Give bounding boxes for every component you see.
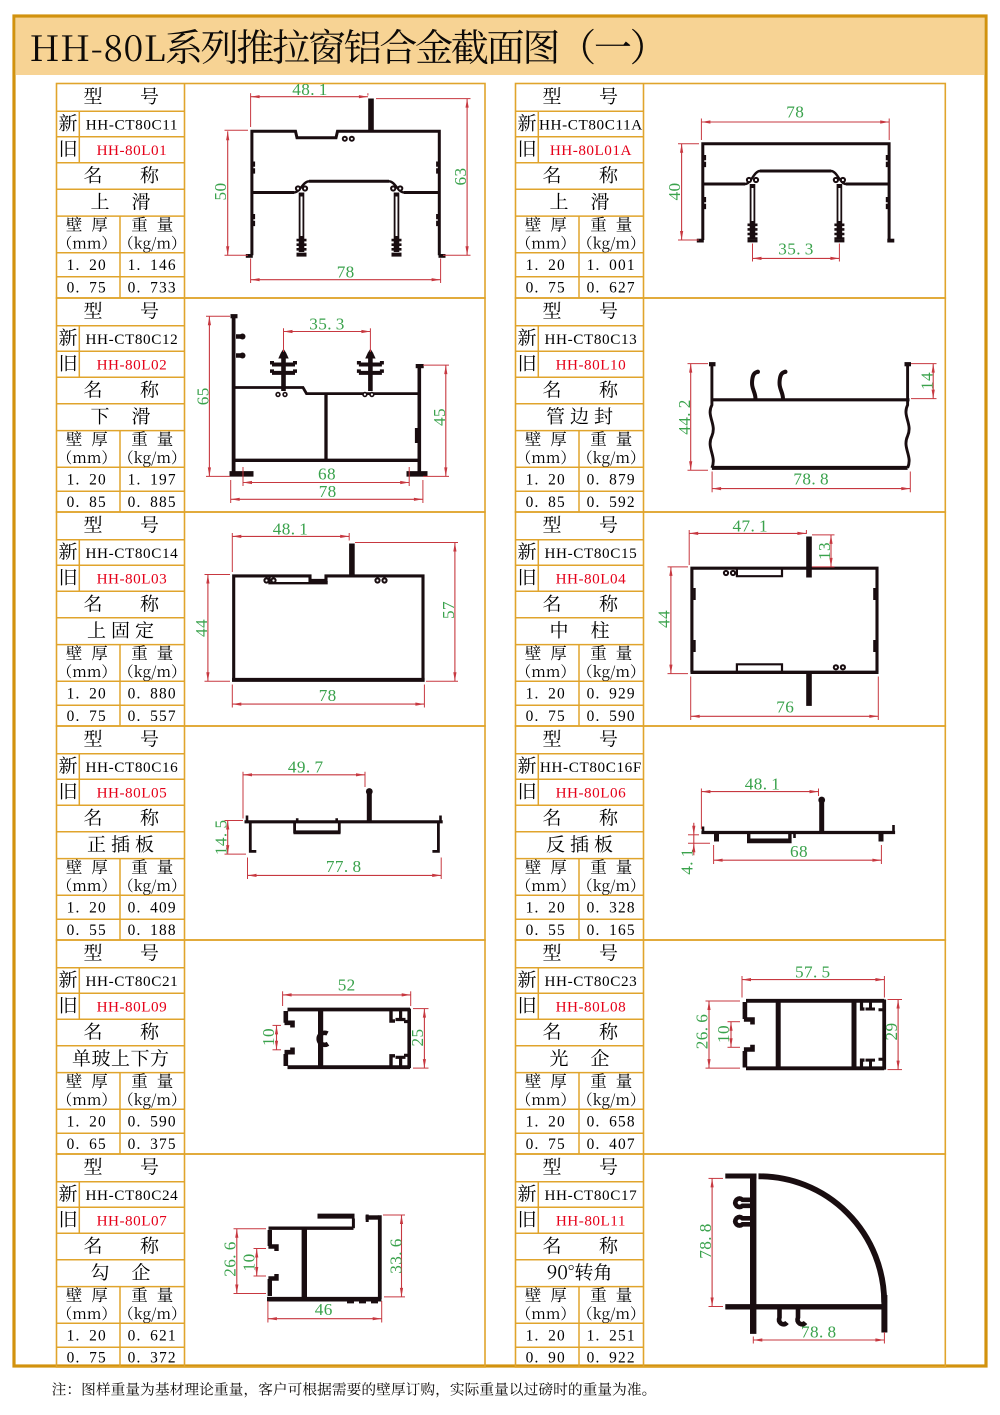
svg-text:14: 14	[918, 372, 937, 390]
svg-text:0. 85: 0. 85	[67, 494, 107, 511]
svg-text:0. 85: 0. 85	[526, 494, 566, 511]
svg-text:49. 7: 49. 7	[288, 758, 324, 777]
svg-text:HH-80L03: HH-80L03	[97, 571, 168, 588]
svg-text:78. 8: 78. 8	[793, 470, 829, 489]
svg-text:35. 3: 35. 3	[309, 314, 345, 333]
svg-text:HH-80L02: HH-80L02	[97, 357, 168, 374]
svg-text:0. 90: 0. 90	[526, 1350, 566, 1367]
svg-text:HH-CT80C16: HH-CT80C16	[85, 759, 178, 776]
svg-text:0. 409: 0. 409	[128, 900, 177, 917]
svg-text:HH-80L01: HH-80L01	[97, 142, 168, 159]
svg-text:0. 75: 0. 75	[67, 708, 107, 725]
svg-text:1. 146: 1. 146	[128, 257, 177, 274]
svg-text:0. 165: 0. 165	[587, 922, 636, 939]
svg-text:0. 621: 0. 621	[128, 1328, 177, 1345]
svg-text:HH-CT80C21: HH-CT80C21	[85, 973, 178, 990]
svg-text:10: 10	[240, 1253, 259, 1271]
svg-text:1. 251: 1. 251	[587, 1328, 636, 1345]
svg-text:HH-CT80C24: HH-CT80C24	[85, 1187, 178, 1204]
svg-text:78. 8: 78. 8	[801, 1323, 837, 1342]
svg-text:HH-CT80C11A: HH-CT80C11A	[539, 116, 643, 133]
svg-text:26. 6: 26. 6	[693, 1014, 712, 1050]
svg-text:40: 40	[665, 183, 684, 201]
svg-text:77. 8: 77. 8	[326, 857, 362, 876]
svg-text:0. 557: 0. 557	[128, 708, 177, 725]
svg-text:48. 1: 48. 1	[273, 519, 309, 538]
svg-text:0. 879: 0. 879	[587, 472, 636, 489]
svg-text:HH-80L09: HH-80L09	[97, 999, 168, 1016]
svg-text:1. 20: 1. 20	[526, 472, 566, 489]
svg-text:44. 2: 44. 2	[675, 399, 694, 435]
svg-text:HH-CT80C11: HH-CT80C11	[86, 116, 178, 133]
svg-text:0. 328: 0. 328	[587, 900, 636, 917]
svg-text:1. 20: 1. 20	[67, 257, 107, 274]
svg-text:HH-80L07: HH-80L07	[97, 1213, 168, 1230]
svg-text:57. 5: 57. 5	[795, 962, 831, 981]
svg-text:65: 65	[193, 387, 212, 405]
svg-text:78: 78	[337, 263, 355, 282]
svg-text:78: 78	[786, 103, 804, 122]
svg-text:0. 590: 0. 590	[128, 1114, 177, 1131]
svg-text:44: 44	[655, 610, 674, 628]
svg-text:HH-80L04: HH-80L04	[556, 571, 627, 588]
svg-text:0. 922: 0. 922	[587, 1350, 636, 1367]
svg-text:45: 45	[430, 408, 449, 426]
svg-text:1. 20: 1. 20	[526, 1328, 566, 1345]
svg-text:78: 78	[319, 686, 337, 705]
svg-text:HH-80L05: HH-80L05	[97, 785, 168, 802]
svg-text:0. 75: 0. 75	[67, 280, 107, 297]
svg-text:78: 78	[319, 482, 337, 501]
svg-text:0. 55: 0. 55	[526, 922, 566, 939]
svg-text:10: 10	[259, 1028, 278, 1046]
svg-text:0. 65: 0. 65	[67, 1136, 107, 1153]
svg-text:4. 1: 4. 1	[678, 848, 697, 875]
svg-text:0. 407: 0. 407	[587, 1136, 636, 1153]
svg-text:33. 6: 33. 6	[387, 1238, 406, 1274]
svg-text:1. 20: 1. 20	[67, 1114, 107, 1131]
svg-text:35. 3: 35. 3	[778, 240, 814, 259]
svg-text:50: 50	[211, 183, 230, 201]
svg-text:HH-CT80C17: HH-CT80C17	[544, 1187, 637, 1204]
svg-text:0. 75: 0. 75	[67, 1350, 107, 1367]
svg-text:29: 29	[882, 1023, 901, 1041]
svg-text:14. 5: 14. 5	[212, 820, 231, 856]
svg-text:57: 57	[439, 601, 458, 619]
svg-text:0. 885: 0. 885	[128, 494, 177, 511]
svg-text:1. 20: 1. 20	[526, 1114, 566, 1131]
svg-text:0. 627: 0. 627	[587, 280, 636, 297]
svg-text:HH-CT80C23: HH-CT80C23	[544, 973, 637, 990]
svg-text:13: 13	[815, 542, 834, 560]
svg-text:0. 658: 0. 658	[587, 1114, 636, 1131]
svg-text:HH-CT80C15: HH-CT80C15	[544, 545, 637, 562]
svg-text:0. 590: 0. 590	[587, 708, 636, 725]
svg-text:76: 76	[776, 698, 794, 717]
svg-text:0. 75: 0. 75	[526, 280, 566, 297]
svg-text:52: 52	[338, 976, 356, 995]
svg-text:26. 6: 26. 6	[220, 1241, 239, 1277]
svg-text:1. 20: 1. 20	[67, 900, 107, 917]
svg-text:0. 372: 0. 372	[128, 1350, 177, 1367]
svg-text:1. 20: 1. 20	[67, 472, 107, 489]
svg-text:0. 733: 0. 733	[128, 280, 177, 297]
svg-text:HH-80L01A: HH-80L01A	[550, 142, 632, 159]
svg-text:1. 20: 1. 20	[67, 686, 107, 703]
svg-text:68: 68	[790, 842, 808, 861]
svg-text:48. 1: 48. 1	[292, 80, 328, 99]
svg-text:0. 880: 0. 880	[128, 686, 177, 703]
svg-text:0. 188: 0. 188	[128, 922, 177, 939]
svg-text:HH-80L10: HH-80L10	[556, 357, 627, 374]
svg-text:10: 10	[714, 1025, 733, 1043]
svg-text:68: 68	[318, 465, 336, 484]
svg-text:HH-CT80C13: HH-CT80C13	[544, 331, 637, 348]
svg-text:47. 1: 47. 1	[733, 516, 769, 535]
svg-text:78. 8: 78. 8	[696, 1223, 715, 1259]
svg-text:1. 20: 1. 20	[526, 900, 566, 917]
svg-text:63: 63	[451, 168, 470, 186]
svg-text:HH-CT80C12: HH-CT80C12	[85, 331, 178, 348]
svg-text:1. 20: 1. 20	[526, 257, 566, 274]
svg-text:HH-80L08: HH-80L08	[556, 999, 627, 1016]
svg-text:HH-80L11: HH-80L11	[556, 1213, 626, 1230]
svg-text:0. 929: 0. 929	[587, 686, 636, 703]
svg-text:HH-80L06: HH-80L06	[556, 785, 627, 802]
svg-text:48. 1: 48. 1	[745, 774, 781, 793]
svg-text:0. 75: 0. 75	[526, 1136, 566, 1153]
svg-text:HH-CT80C16F: HH-CT80C16F	[540, 759, 642, 776]
svg-text:25: 25	[408, 1029, 427, 1047]
svg-text:0. 55: 0. 55	[67, 922, 107, 939]
svg-text:1. 20: 1. 20	[67, 1328, 107, 1345]
svg-text:0. 592: 0. 592	[587, 494, 636, 511]
svg-text:1. 20: 1. 20	[526, 686, 566, 703]
svg-text:46: 46	[315, 1300, 333, 1319]
svg-text:44: 44	[192, 619, 211, 637]
svg-text:1. 197: 1. 197	[128, 472, 177, 489]
svg-text:1. 001: 1. 001	[587, 257, 636, 274]
svg-text:0. 75: 0. 75	[526, 708, 566, 725]
svg-text:0. 375: 0. 375	[128, 1136, 177, 1153]
svg-text:HH-CT80C14: HH-CT80C14	[85, 545, 178, 562]
